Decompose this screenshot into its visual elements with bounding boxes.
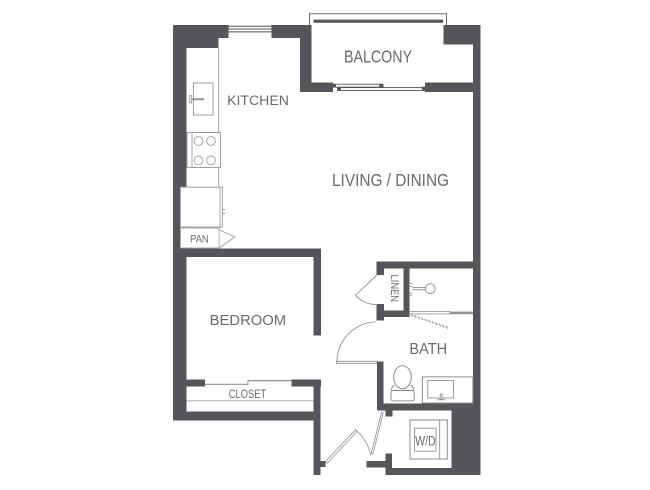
svg-text:PAN: PAN [190, 233, 209, 245]
svg-text:BEDROOM: BEDROOM [210, 313, 286, 329]
svg-text:BATH: BATH [409, 341, 447, 358]
svg-text:LINEN: LINEN [388, 275, 400, 303]
svg-text:W/D: W/D [415, 433, 436, 448]
svg-text:CLOSET: CLOSET [229, 388, 266, 401]
svg-text:KITCHEN: KITCHEN [227, 93, 289, 109]
svg-text:LIVING / DINING: LIVING / DINING [332, 170, 449, 190]
svg-text:BALCONY: BALCONY [344, 47, 412, 67]
